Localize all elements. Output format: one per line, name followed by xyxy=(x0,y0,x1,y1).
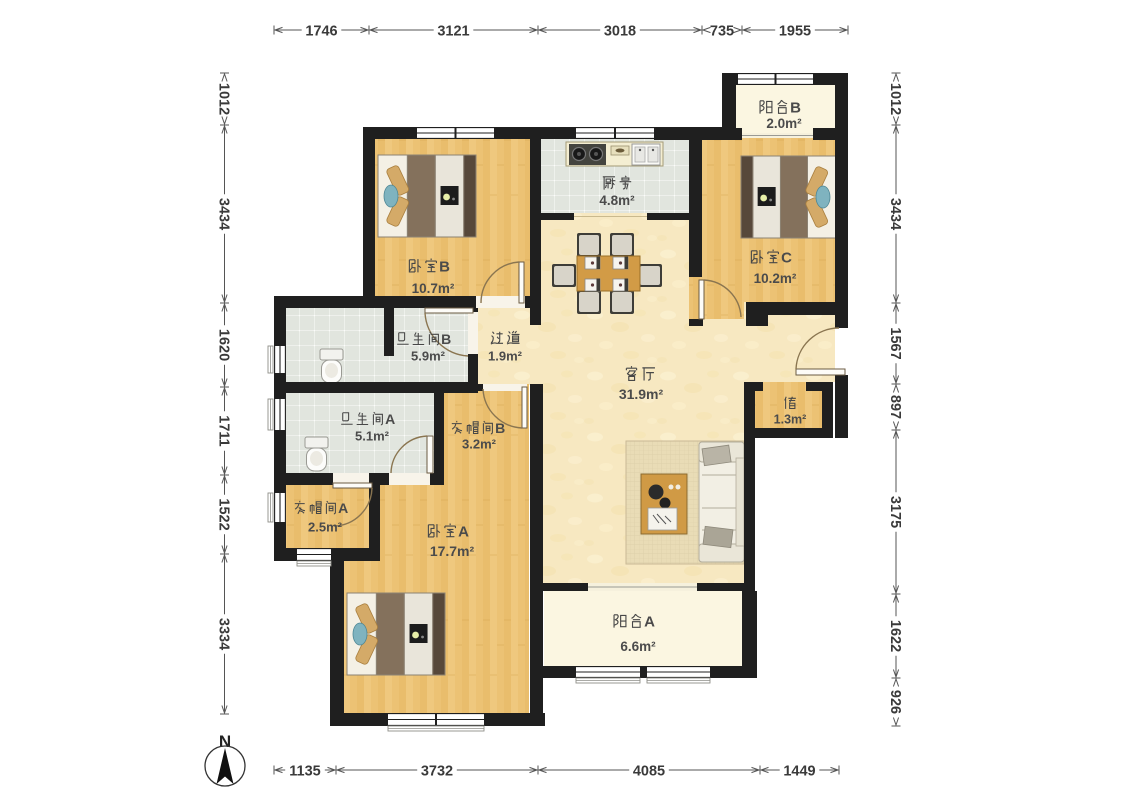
svg-text:3334: 3334 xyxy=(216,618,232,650)
svg-text:1955: 1955 xyxy=(779,23,811,39)
svg-text:1.9m²: 1.9m² xyxy=(488,349,523,364)
svg-text:1012: 1012 xyxy=(216,83,232,115)
svg-text:3434: 3434 xyxy=(887,198,903,230)
svg-text:31.9m²: 31.9m² xyxy=(619,386,664,402)
svg-text:3434: 3434 xyxy=(216,198,232,230)
svg-text:1746: 1746 xyxy=(305,23,337,39)
svg-text:3.2m²: 3.2m² xyxy=(462,437,497,452)
svg-text:1135: 1135 xyxy=(289,763,320,779)
svg-text:4.8m²: 4.8m² xyxy=(599,193,635,208)
svg-text:6.6m²: 6.6m² xyxy=(620,639,656,654)
svg-text:1567: 1567 xyxy=(887,327,903,359)
svg-text:5.9m²: 5.9m² xyxy=(411,349,446,364)
svg-text:B: B xyxy=(790,99,801,116)
svg-text:17.7m²: 17.7m² xyxy=(430,543,475,559)
svg-text:2.0m²: 2.0m² xyxy=(766,116,802,131)
svg-text:3175: 3175 xyxy=(887,496,903,528)
svg-text:B: B xyxy=(441,331,451,347)
svg-text:1522: 1522 xyxy=(216,498,232,530)
svg-text:3732: 3732 xyxy=(421,763,453,779)
svg-text:B: B xyxy=(439,258,450,275)
svg-text:1711: 1711 xyxy=(216,415,232,446)
svg-text:A: A xyxy=(385,411,395,427)
svg-text:2.5m²: 2.5m² xyxy=(308,520,343,535)
svg-text:897: 897 xyxy=(887,395,903,419)
svg-text:1012: 1012 xyxy=(887,83,903,115)
svg-text:735: 735 xyxy=(710,23,734,39)
svg-text:A: A xyxy=(644,613,655,630)
svg-text:1449: 1449 xyxy=(783,763,815,779)
svg-text:5.1m²: 5.1m² xyxy=(355,429,390,444)
svg-text:4085: 4085 xyxy=(633,763,665,779)
svg-text:3018: 3018 xyxy=(604,23,636,39)
svg-text:A: A xyxy=(338,500,348,516)
svg-text:1.3m²: 1.3m² xyxy=(774,413,807,427)
svg-text:1620: 1620 xyxy=(216,329,232,361)
svg-text:B: B xyxy=(495,420,505,436)
svg-text:3121: 3121 xyxy=(437,23,469,39)
svg-text:10.2m²: 10.2m² xyxy=(754,271,797,286)
svg-text:A: A xyxy=(458,523,469,540)
svg-text:C: C xyxy=(781,249,792,266)
svg-text:1622: 1622 xyxy=(887,620,903,652)
svg-text:926: 926 xyxy=(887,690,903,714)
svg-text:10.7m²: 10.7m² xyxy=(412,281,455,296)
